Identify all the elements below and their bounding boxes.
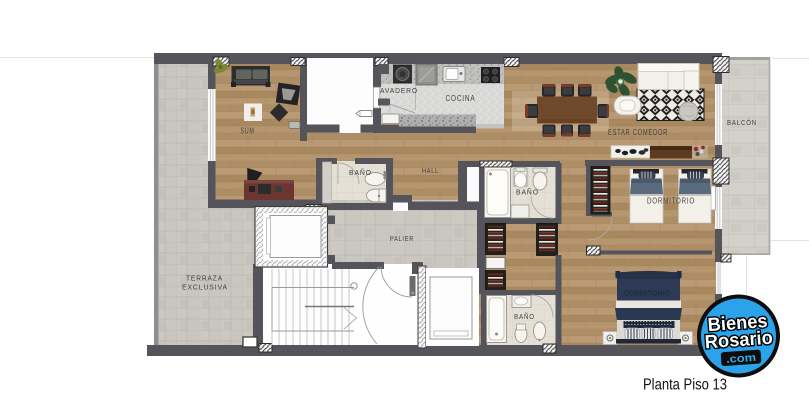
svg-text:HALL: HALL <box>422 166 439 175</box>
svg-text:EXCLUSIVA: EXCLUSIVA <box>182 283 228 292</box>
svg-text:BAÑO: BAÑO <box>514 312 535 321</box>
svg-text:BALCÓN: BALCÓN <box>727 118 757 127</box>
svg-text:PALIER: PALIER <box>390 234 414 243</box>
svg-text:DORMITORIO: DORMITORIO <box>624 289 670 298</box>
svg-text:.com: .com <box>726 352 757 366</box>
svg-text:Planta Piso 13: Planta Piso 13 <box>643 376 727 393</box>
svg-text:BAÑO: BAÑO <box>516 188 539 197</box>
svg-text:COCINA: COCINA <box>446 94 476 103</box>
svg-text:TERRAZA: TERRAZA <box>186 274 223 283</box>
svg-text:AVADERO: AVADERO <box>380 86 418 95</box>
svg-text:SUM: SUM <box>241 127 255 136</box>
svg-text:DORMITORIO: DORMITORIO <box>647 197 695 206</box>
svg-text:BAÑO: BAÑO <box>349 168 372 177</box>
svg-text:ESTAR COMEDOR: ESTAR COMEDOR <box>608 128 668 137</box>
